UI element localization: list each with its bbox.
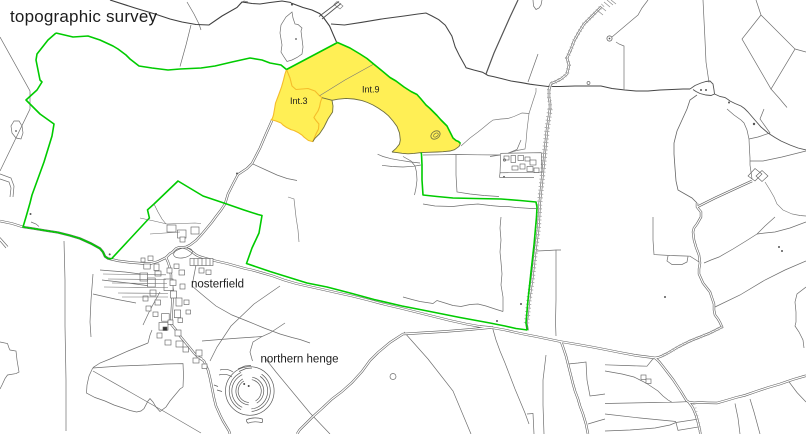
svg-text:Int.3: Int.3 (290, 96, 308, 106)
svg-text:topographic survey: topographic survey (10, 7, 158, 26)
svg-text:nosterfield: nosterfield (191, 279, 244, 291)
svg-text:Int.9: Int.9 (362, 85, 380, 95)
svg-text:northern henge: northern henge (261, 354, 339, 366)
